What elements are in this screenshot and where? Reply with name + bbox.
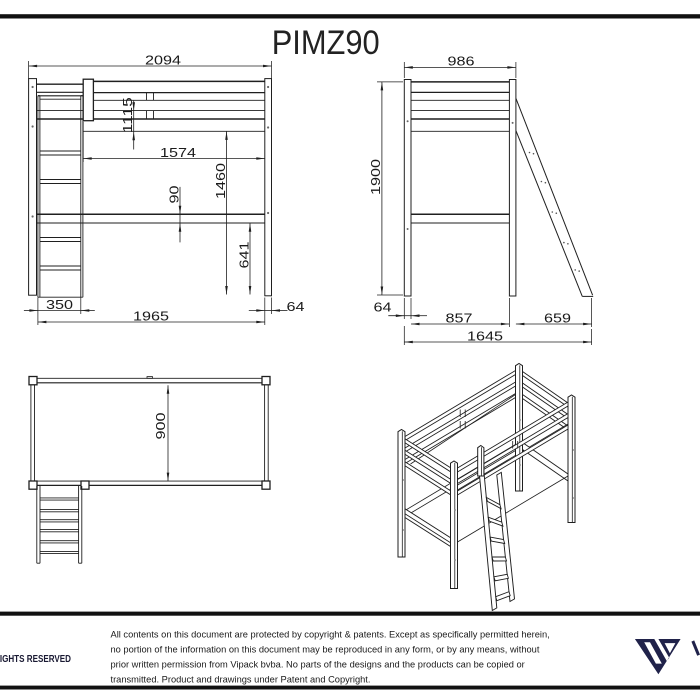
svg-text:350: 350 (46, 297, 73, 312)
svg-text:986: 986 (448, 54, 475, 69)
svg-text:1115: 1115 (120, 97, 135, 133)
svg-text:PIMZ90: PIMZ90 (272, 24, 380, 62)
svg-text:64: 64 (374, 300, 392, 315)
svg-text:641: 641 (236, 241, 251, 268)
svg-text:659: 659 (544, 310, 571, 325)
svg-text:All contents on this document: All contents on this document are protec… (111, 629, 550, 639)
svg-text:1574: 1574 (160, 145, 196, 160)
svg-text:64: 64 (287, 299, 305, 314)
svg-text:1965: 1965 (133, 308, 169, 323)
svg-text:2094: 2094 (145, 52, 181, 67)
svg-text:RIGHTS RESERVED: RIGHTS RESERVED (0, 654, 71, 665)
svg-text:1460: 1460 (213, 163, 228, 199)
svg-text:857: 857 (446, 310, 473, 325)
svg-text:transmitted. Product and drawi: transmitted. Product and drawings under … (111, 675, 371, 685)
svg-text:900: 900 (153, 413, 168, 440)
svg-text:90: 90 (166, 186, 181, 204)
svg-text:prior written permission from: prior written permission from Vipack bvb… (111, 660, 525, 670)
svg-text:1900: 1900 (368, 159, 383, 195)
svg-text:1645: 1645 (467, 328, 503, 343)
svg-text:no portion of the information: no portion of the information on this do… (111, 645, 540, 655)
